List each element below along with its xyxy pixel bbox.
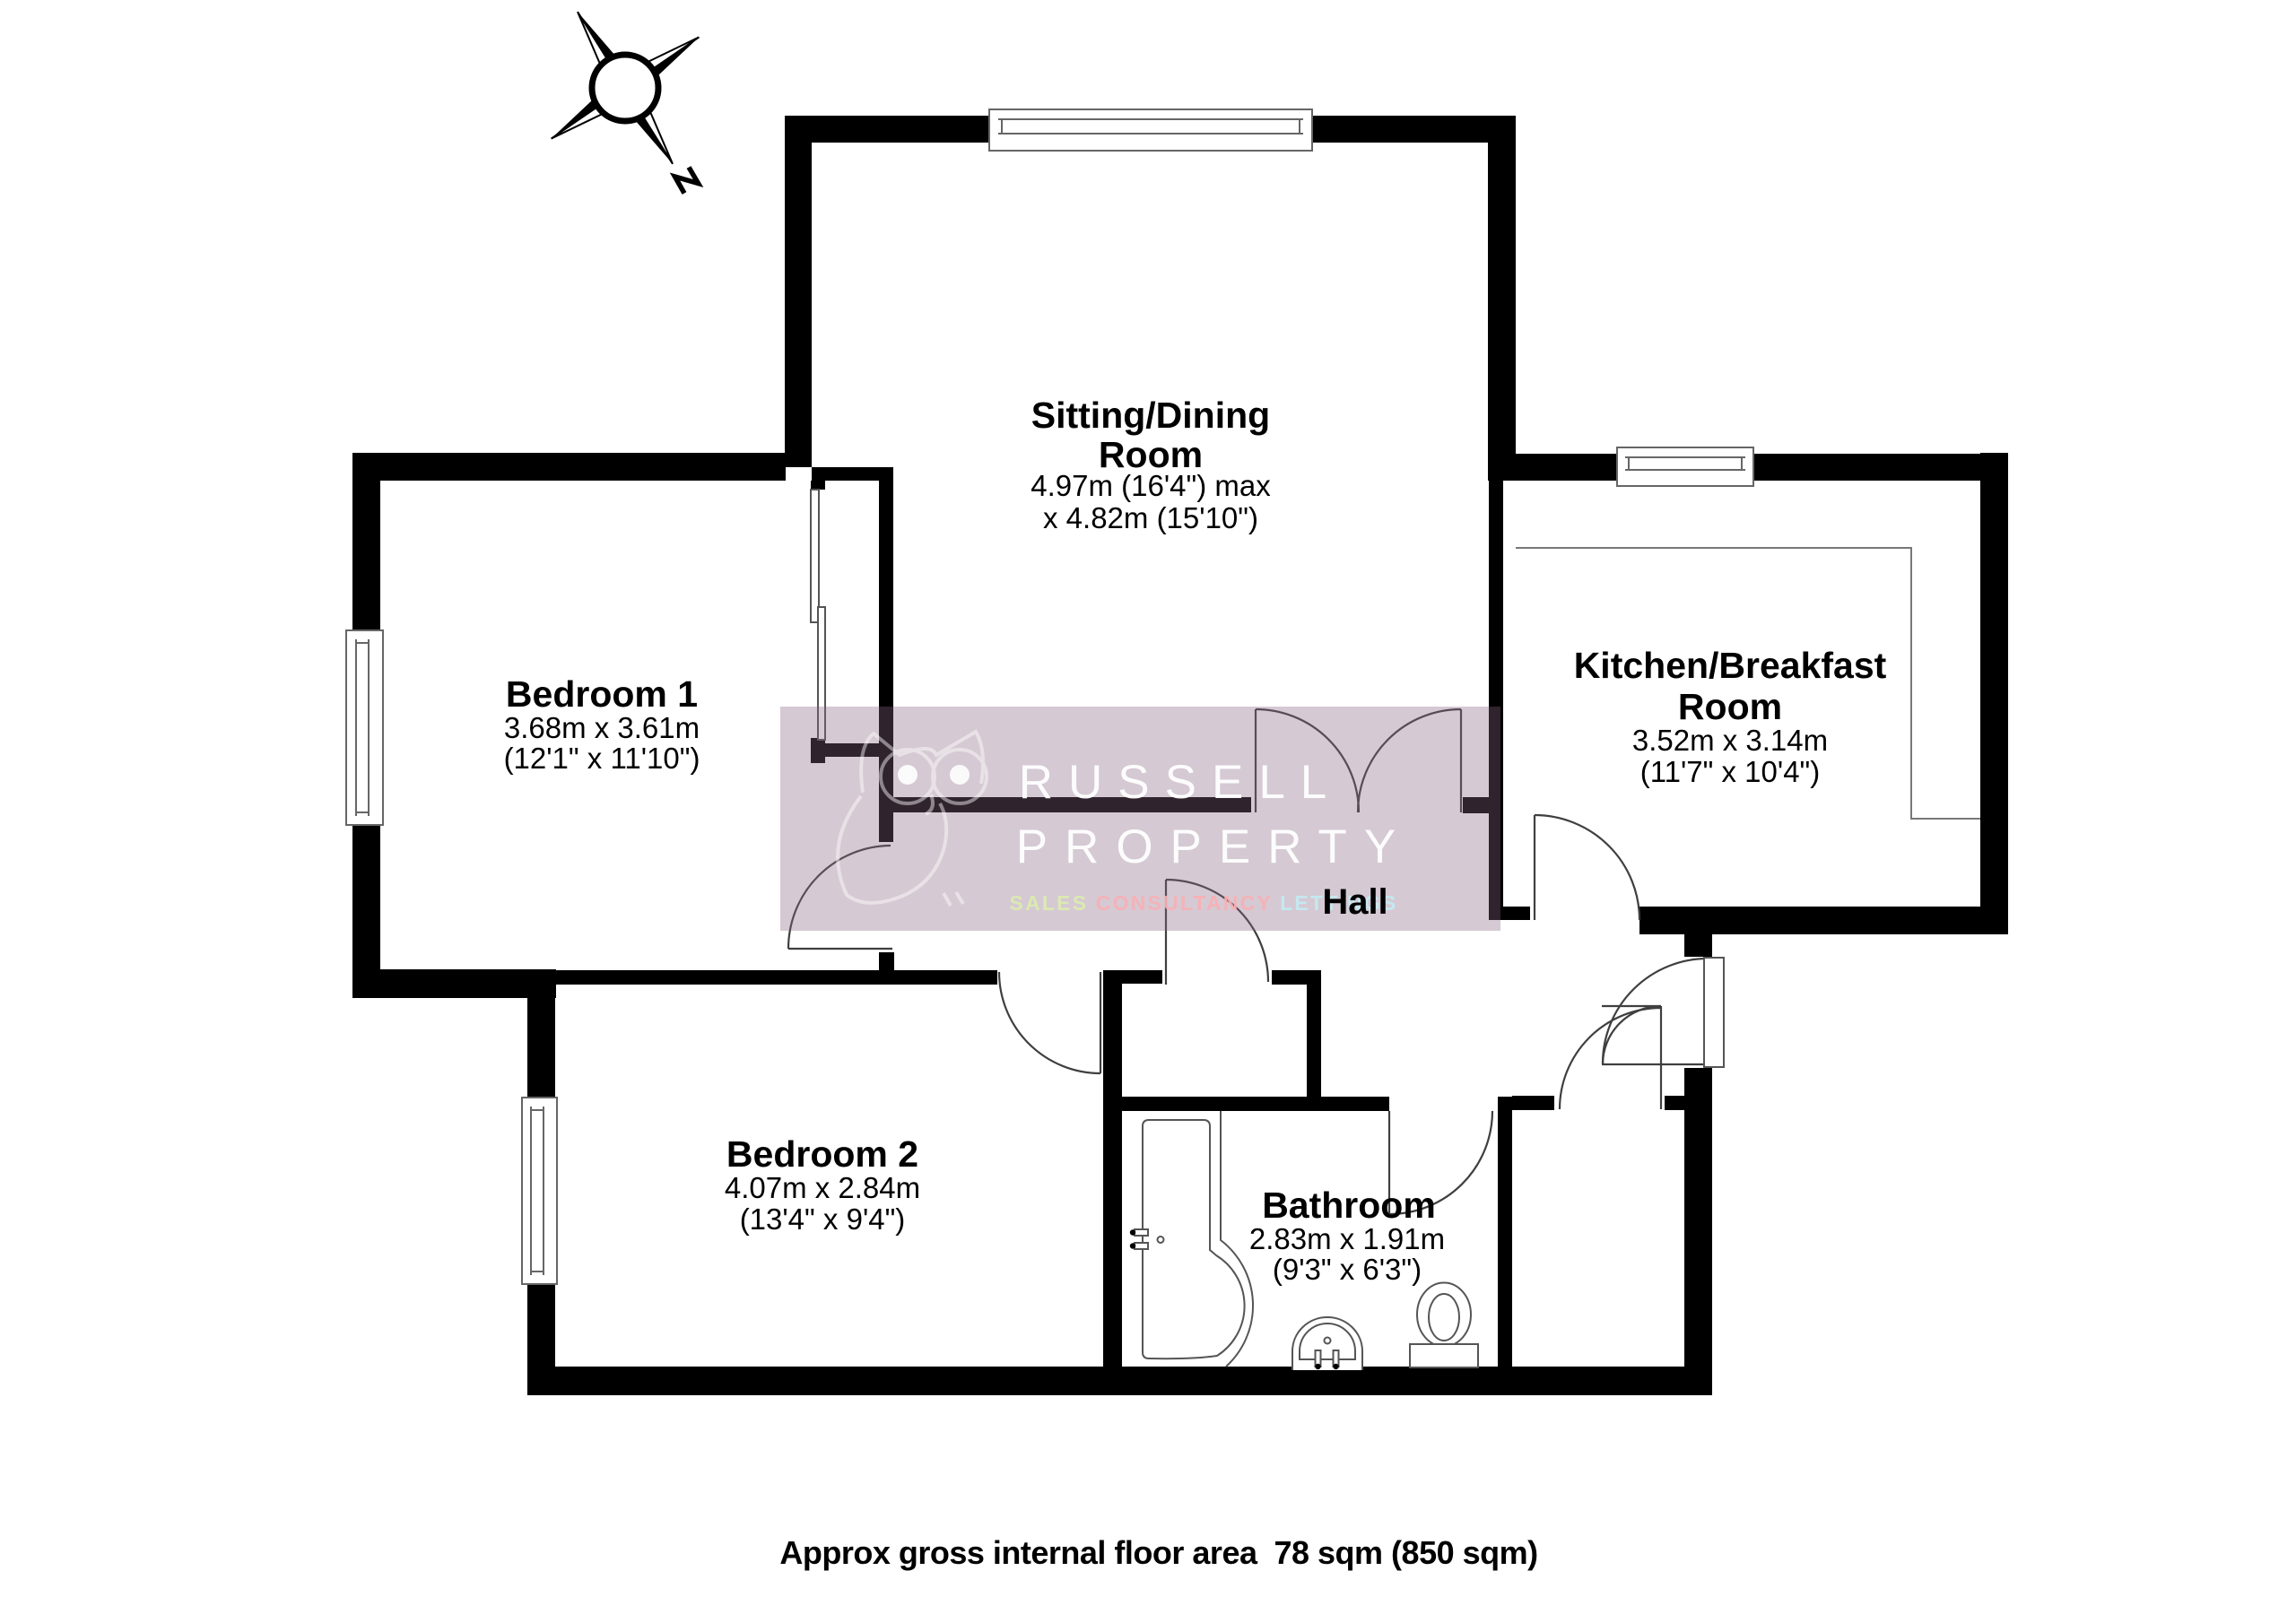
svg-text:3.52m x 3.14m: 3.52m x 3.14m <box>1632 724 1828 757</box>
svg-text:(11'7" x 10'4"): (11'7" x 10'4") <box>1640 755 1821 788</box>
svg-text:Hall: Hall <box>1322 882 1387 922</box>
svg-text:(9'3" x 6'3"): (9'3" x 6'3") <box>1273 1253 1422 1286</box>
svg-text:Kitchen/Breakfast: Kitchen/Breakfast <box>1574 645 1887 686</box>
svg-text:PROPERTY: PROPERTY <box>1016 820 1413 873</box>
svg-text:2.83m x 1.91m: 2.83m x 1.91m <box>1249 1222 1445 1255</box>
svg-text:4.07m x 2.84m: 4.07m x 2.84m <box>725 1171 920 1204</box>
svg-text:x 4.82m (15'10"): x 4.82m (15'10") <box>1043 501 1258 534</box>
svg-text:4.97m (16'4") max: 4.97m (16'4") max <box>1031 469 1271 502</box>
svg-text:Bathroom: Bathroom <box>1262 1185 1436 1226</box>
svg-text:Bedroom 1: Bedroom 1 <box>506 673 698 715</box>
svg-text:3.68m x 3.61m: 3.68m x 3.61m <box>504 711 700 744</box>
svg-text:Sitting/Dining: Sitting/Dining <box>1031 395 1270 436</box>
svg-text:(12'1" x 11'10"): (12'1" x 11'10") <box>504 742 700 775</box>
svg-text:RUSSELL: RUSSELL <box>1019 756 1343 809</box>
svg-text:Room: Room <box>1678 686 1782 727</box>
svg-text:Approx gross internal floor ar: Approx gross internal floor area 78 sqm … <box>779 1534 1537 1571</box>
svg-text:(13'4" x 9'4"): (13'4" x 9'4") <box>740 1202 906 1236</box>
svg-text:Bedroom 2: Bedroom 2 <box>726 1133 918 1175</box>
